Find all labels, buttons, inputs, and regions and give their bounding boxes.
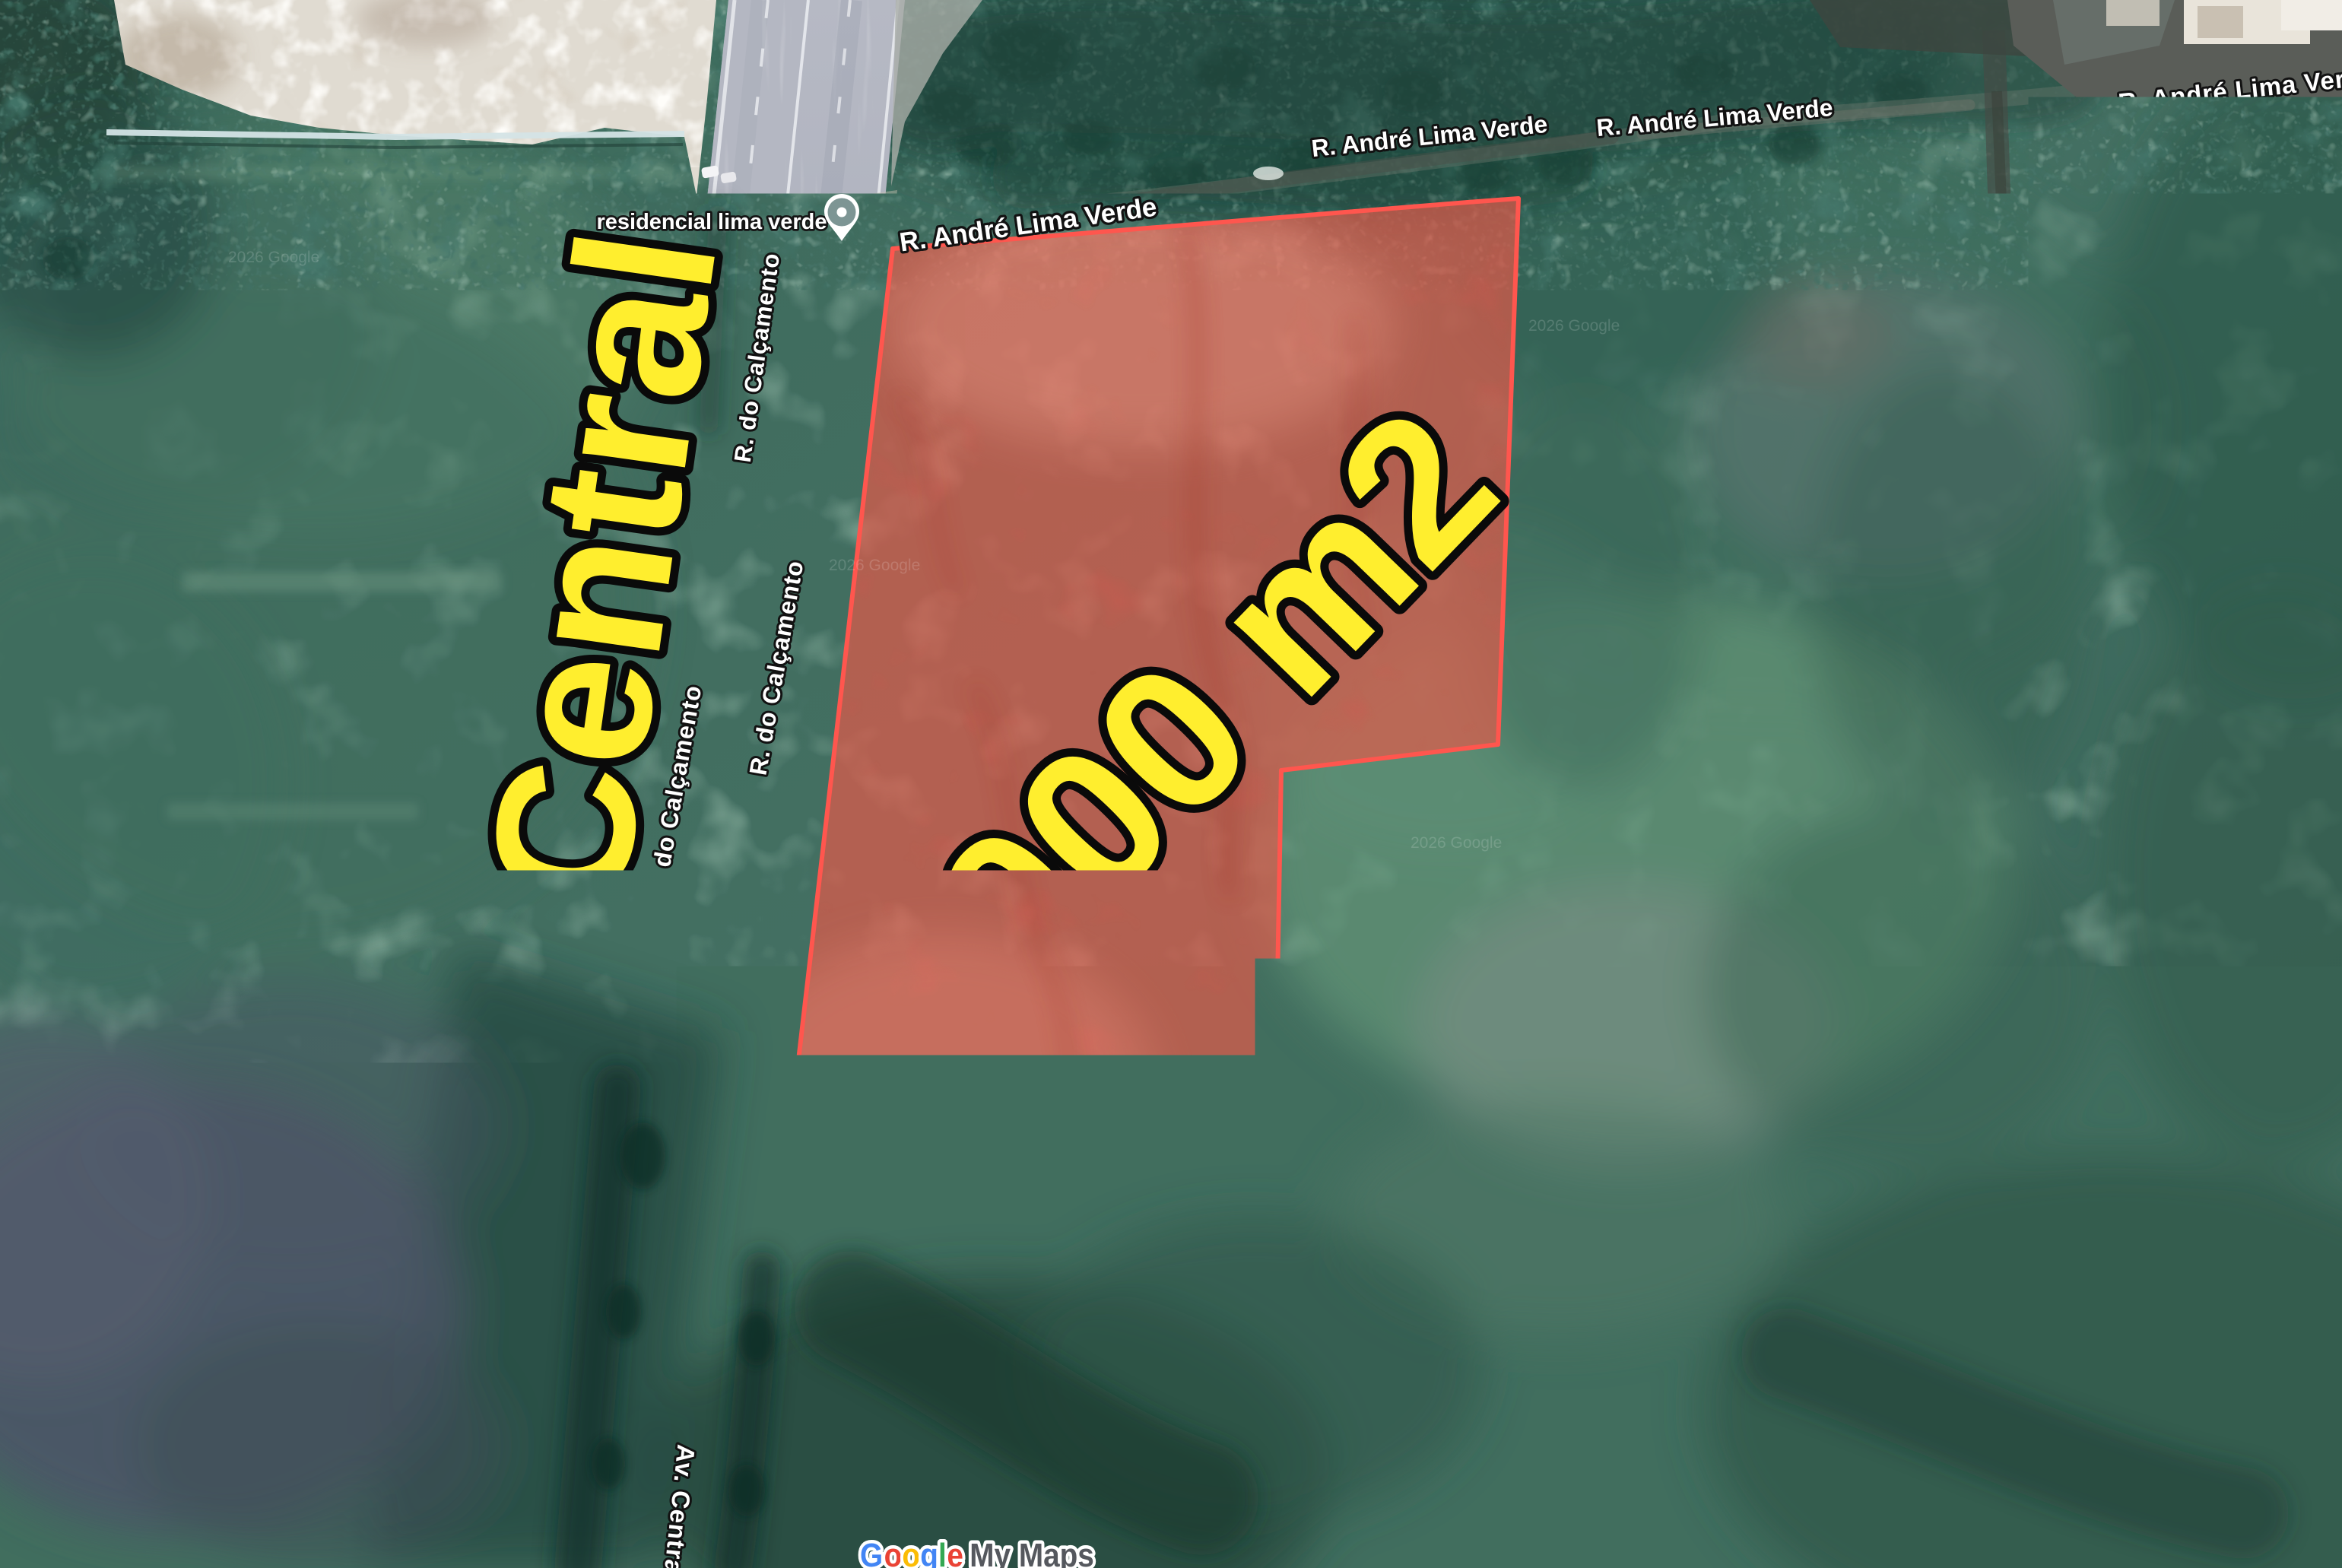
- svg-text:2026 Google: 2026 Google: [1080, 1366, 1171, 1384]
- svg-text:2026 Google: 2026 Google: [1528, 317, 1620, 335]
- svg-text:2026 Google: 2026 Google: [734, 1112, 825, 1129]
- svg-text:g: g: [920, 1536, 938, 1568]
- svg-text:o: o: [902, 1536, 920, 1568]
- svg-text:G: G: [860, 1536, 883, 1568]
- svg-text:o: o: [884, 1536, 903, 1568]
- svg-text:CE-090: CE-090: [583, 1211, 655, 1235]
- svg-text:© 2026 Go: © 2026 Go: [2270, 1535, 2342, 1556]
- svg-text:e: e: [947, 1536, 963, 1568]
- svg-text:2026 Google: 2026 Google: [1411, 834, 1502, 852]
- svg-text:2026 Google: 2026 Google: [228, 249, 319, 266]
- svg-text:2026 Google: 2026 Google: [1749, 910, 1840, 928]
- svg-text:2026 Google: 2026 Google: [829, 557, 920, 574]
- svg-text:l: l: [938, 1536, 947, 1568]
- svg-text:residencial lima verde: residencial lima verde: [596, 210, 827, 234]
- svg-text:CE-090: CE-090: [679, 1075, 751, 1099]
- svg-text:My Maps: My Maps: [969, 1536, 1093, 1568]
- svg-text:2026 Google: 2026 Google: [2015, 1085, 2106, 1103]
